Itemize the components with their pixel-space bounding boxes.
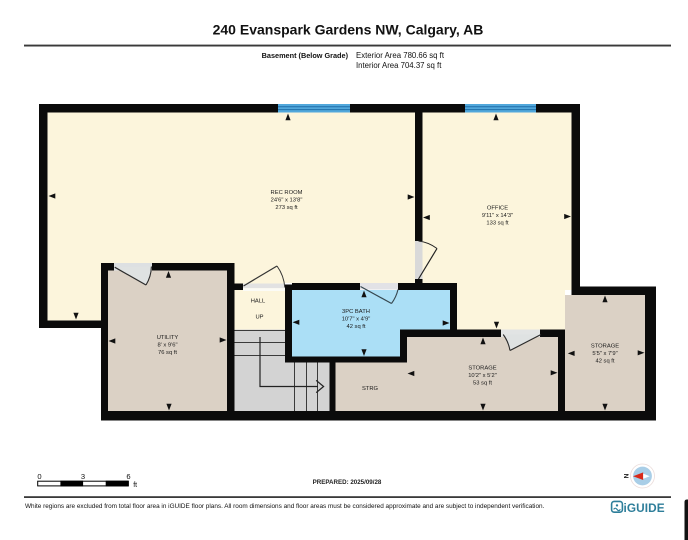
svg-text:PREPARED: 2025/09/28: PREPARED: 2025/09/28 xyxy=(313,479,382,486)
svg-text:8' x 9'6": 8' x 9'6" xyxy=(157,343,177,349)
svg-text:STORAGE: STORAGE xyxy=(591,344,619,350)
svg-text:42 sq ft: 42 sq ft xyxy=(595,359,614,365)
svg-text:ft: ft xyxy=(133,482,137,489)
svg-text:Basement (Below Grade): Basement (Below Grade) xyxy=(262,51,349,60)
svg-text:42 sq ft: 42 sq ft xyxy=(346,324,365,330)
svg-text:240 Evanspark Gardens NW, Calg: 240 Evanspark Gardens NW, Calgary, AB xyxy=(213,22,484,38)
svg-text:273 sq ft: 273 sq ft xyxy=(275,205,298,211)
svg-text:133 sq ft: 133 sq ft xyxy=(486,221,509,227)
svg-text:5'5" x 7'9": 5'5" x 7'9" xyxy=(592,351,617,357)
svg-text:Exterior Area 780.66 sq ft: Exterior Area 780.66 sq ft xyxy=(356,51,445,60)
svg-text:STRG: STRG xyxy=(362,386,379,392)
svg-text:Interior Area 704.37 sq ft: Interior Area 704.37 sq ft xyxy=(356,61,442,70)
svg-text:53 sq ft: 53 sq ft xyxy=(473,381,492,387)
svg-text:UTILITY: UTILITY xyxy=(157,335,179,341)
svg-text:3PC BATH: 3PC BATH xyxy=(342,309,370,315)
svg-text:10'7" x 4'9": 10'7" x 4'9" xyxy=(342,317,371,323)
svg-text:HALL: HALL xyxy=(251,299,266,305)
svg-text:N: N xyxy=(624,473,631,478)
svg-text:OFFICE: OFFICE xyxy=(487,206,508,212)
svg-text:10'2" x 5'2": 10'2" x 5'2" xyxy=(468,373,497,379)
svg-text:6: 6 xyxy=(126,472,130,481)
svg-text:STORAGE: STORAGE xyxy=(468,366,496,372)
svg-text:24'6" x 13'8": 24'6" x 13'8" xyxy=(271,198,303,204)
svg-text:iGUIDE: iGUIDE xyxy=(624,501,665,515)
svg-text:9'11" x 14'3": 9'11" x 14'3" xyxy=(482,213,513,219)
svg-text:White regions are excluded fro: White regions are excluded from total fl… xyxy=(25,503,545,510)
svg-text:76 sq ft: 76 sq ft xyxy=(158,350,177,356)
svg-text:0: 0 xyxy=(37,472,41,481)
svg-text:REC ROOM: REC ROOM xyxy=(271,190,303,196)
svg-text:UP: UP xyxy=(255,315,263,321)
svg-text:3: 3 xyxy=(81,472,85,481)
